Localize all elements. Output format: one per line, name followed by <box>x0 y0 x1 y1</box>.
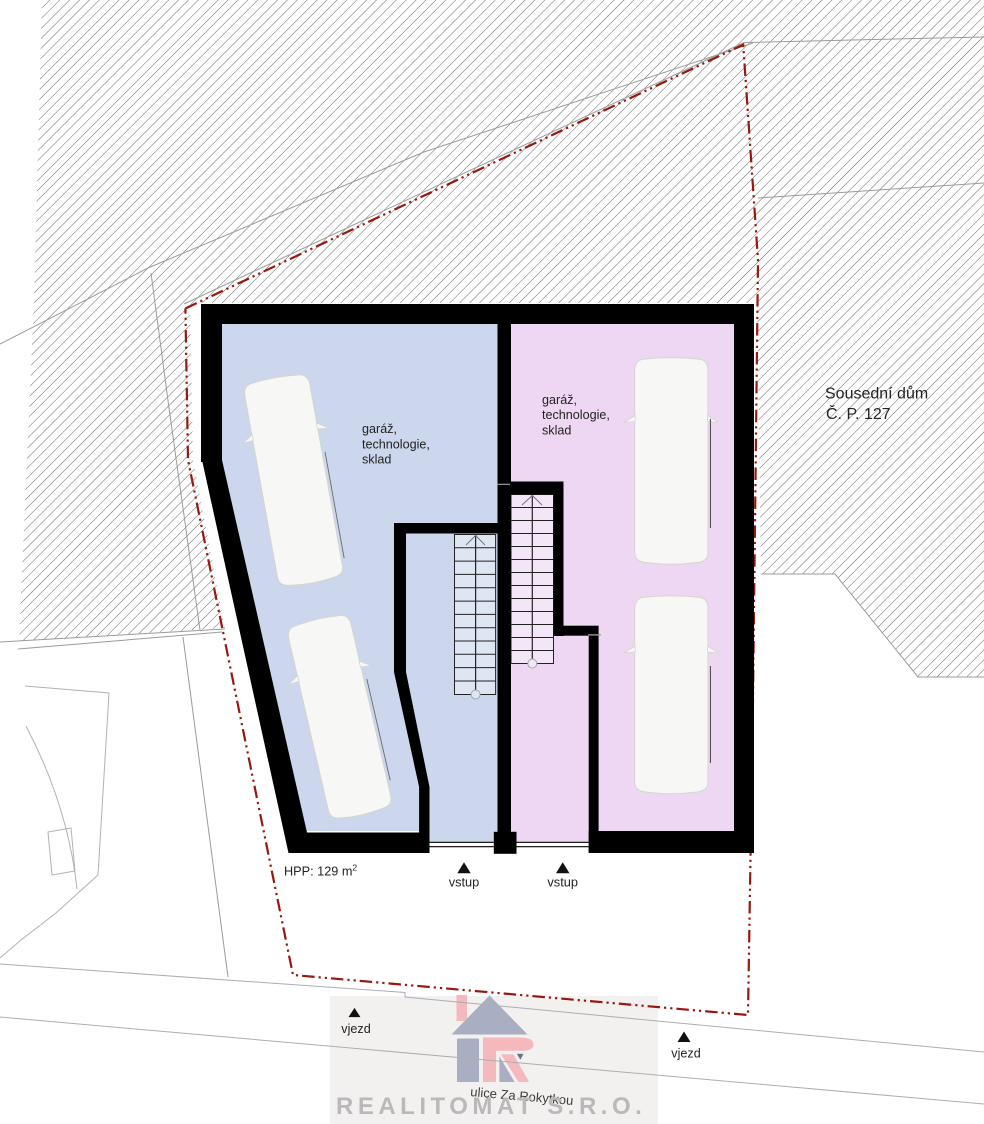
svg-text:vstup: vstup <box>547 875 578 890</box>
svg-text:REALITOMAT S.R.O.: REALITOMAT S.R.O. <box>336 1093 646 1120</box>
svg-text:HPP: 129 m2: HPP: 129 m2 <box>284 863 357 879</box>
svg-text:vstup: vstup <box>449 875 480 890</box>
svg-text:vjezd: vjezd <box>341 1022 370 1036</box>
svg-text:vjezd: vjezd <box>671 1047 700 1061</box>
